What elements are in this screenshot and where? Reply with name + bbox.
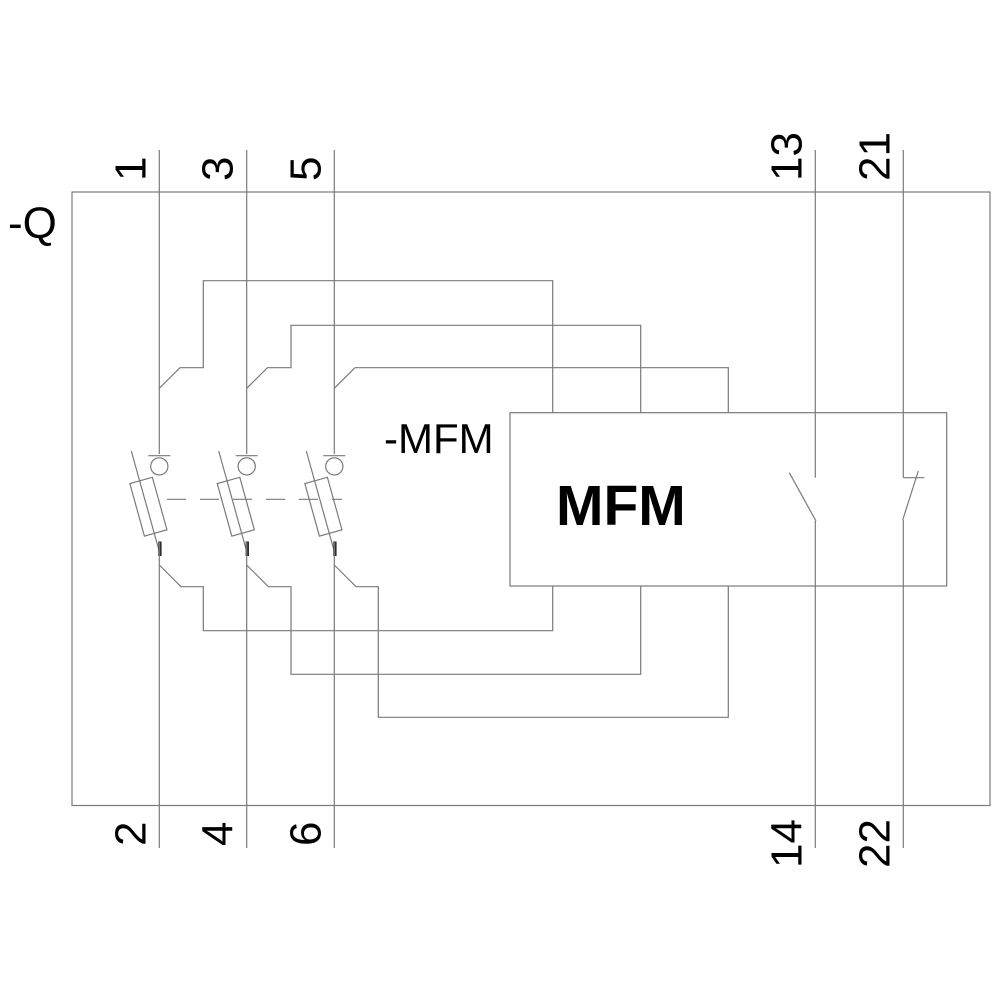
mfm-reference-label: -MFM <box>384 415 494 462</box>
pole-2-contact-circle <box>238 458 255 475</box>
pole-1-overload-element <box>130 477 167 536</box>
device-reference-label: -Q <box>8 199 57 248</box>
terminal-label-5: 5 <box>281 157 330 181</box>
pole-3-overload-element <box>305 477 342 536</box>
terminal-label-13: 13 <box>762 132 811 181</box>
terminal-label-4: 4 <box>194 822 243 846</box>
aux-contact-no-13-14 <box>789 150 816 848</box>
aux-13-14-no-blade <box>789 473 816 521</box>
aux-contact-nc-21-22 <box>903 150 925 848</box>
pole-1-upper-trip-link <box>159 281 552 413</box>
terminal-label-3: 3 <box>194 157 243 181</box>
schematic-page: -Q -MFM MFM 1 3 5 13 21 2 4 6 14 22 <box>0 0 1000 1000</box>
pole-2-overload-element <box>217 477 254 536</box>
pole-1-lower-trip-link <box>159 565 552 631</box>
pole-3-upper-trip-link <box>334 368 728 413</box>
pole-2-upper-trip-link <box>247 325 641 412</box>
aux-21-22-nc-blade <box>903 471 919 520</box>
pole-2-lower-trip-link <box>247 565 641 674</box>
terminal-label-14: 14 <box>762 819 811 868</box>
terminal-label-21: 21 <box>850 132 899 181</box>
pole-3-contact-circle <box>326 458 343 475</box>
terminal-label-2: 2 <box>106 822 155 846</box>
circuit-breaker-schematic: -Q -MFM MFM 1 3 5 13 21 2 4 6 14 22 <box>0 0 1000 1000</box>
terminal-label-22: 22 <box>850 819 899 868</box>
mfm-module-name: MFM <box>556 474 686 538</box>
pole-3-lower-trip-link <box>334 565 728 717</box>
pole-1-contact-circle <box>151 458 168 475</box>
terminal-label-1: 1 <box>106 157 155 181</box>
terminal-label-6: 6 <box>281 822 330 846</box>
